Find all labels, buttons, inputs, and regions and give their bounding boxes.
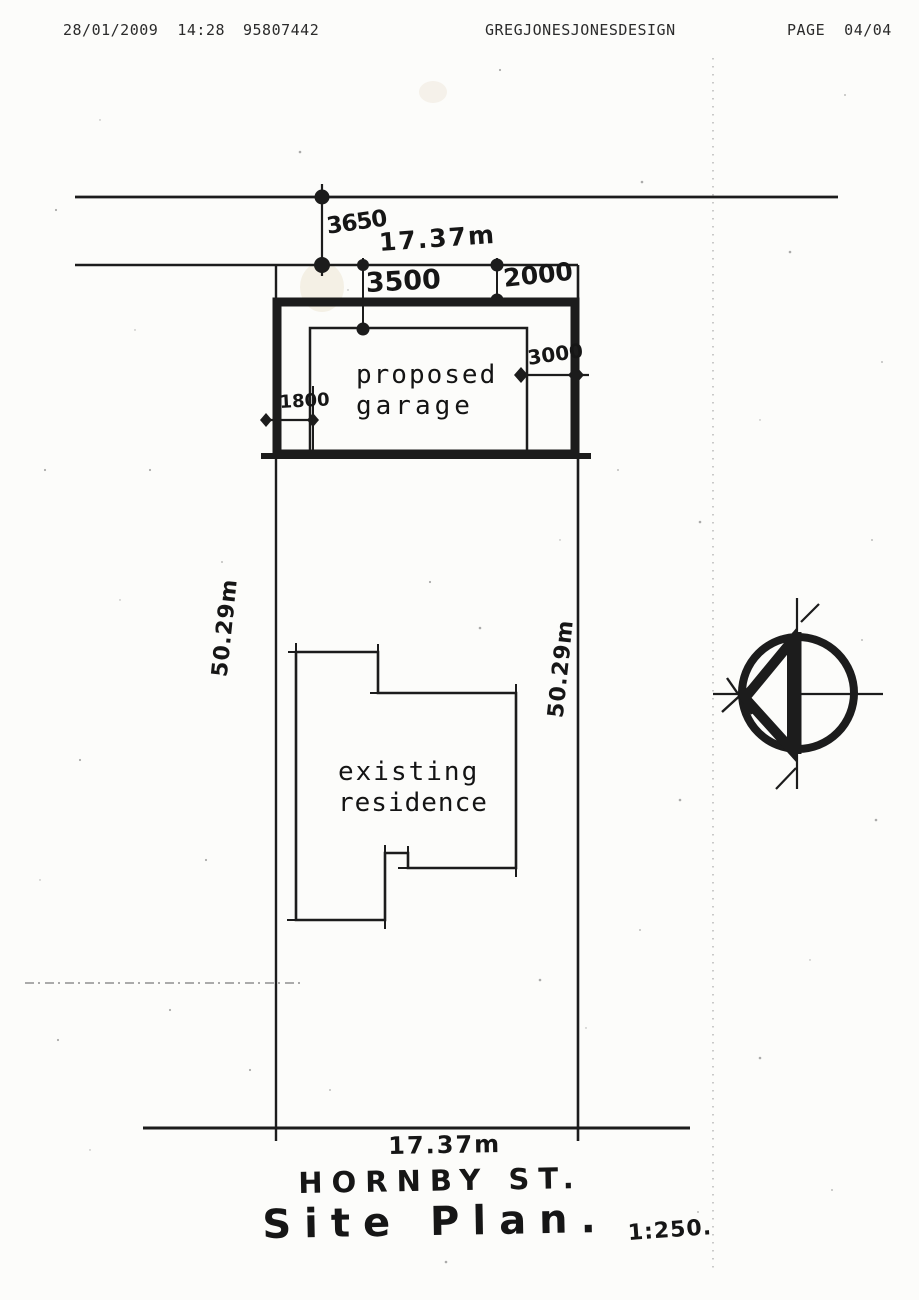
street-name-label: HORNBY ST. [298,1161,583,1200]
residence-label-line2: residence [338,788,488,818]
dim-3000-lines [514,366,589,384]
fax-site-plan-page: 28/01/2009 14:28 95807442 GREGJONESJONES… [0,0,919,1300]
drawing-title: Site Plan. [262,1196,609,1248]
garage-label-line1: proposed [356,360,497,390]
garage-label-line2: garage [356,391,474,421]
dim-1800-label: 1800 [279,389,330,413]
site-plan-drawing [0,0,919,1300]
north-arrow-icon [713,598,883,789]
residence-label-line1: existing [338,757,479,787]
dim-3500-label: 3500 [365,264,442,299]
dim-bottom-frontage-label: 17.37m [388,1130,501,1160]
